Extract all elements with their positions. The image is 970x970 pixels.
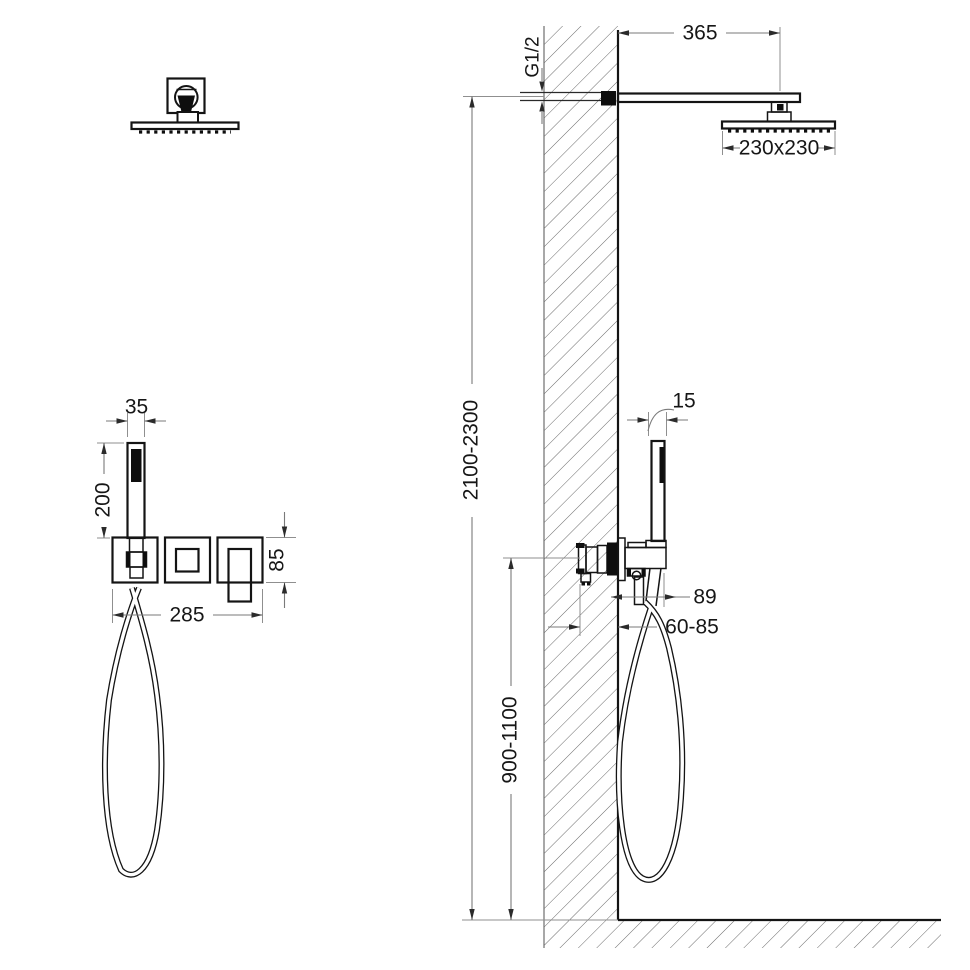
holder-body-side — [625, 548, 666, 569]
dim-label-mixer-height: 900-1100 — [499, 696, 522, 783]
arrow-left — [618, 624, 629, 629]
technical-drawing-page: 365 G1/2 230x230 — [0, 0, 970, 970]
dim-label-inlet-thread: G1/2 — [523, 36, 544, 77]
dim-hand-shower-width: 35 — [106, 396, 166, 438]
hand-shower-face-side — [660, 447, 664, 483]
shower-head-plate — [132, 123, 239, 130]
overhead-shower-front-view — [132, 79, 239, 133]
hand-shower-hose — [105, 588, 162, 875]
dim-label-hand-shower-width: 35 — [125, 396, 148, 419]
hose-coupling — [130, 567, 143, 578]
arrow-right — [769, 30, 780, 36]
dim-inlet-thread: G1/2 — [523, 36, 545, 124]
head-connector — [178, 112, 199, 123]
dim-overhead-height: 2100-2300 — [460, 97, 545, 921]
arrow-right — [638, 417, 649, 423]
arrow-down — [101, 527, 106, 538]
ball-joint-nut — [178, 96, 196, 113]
wand-lower-body — [130, 538, 144, 552]
arrow-left — [618, 30, 629, 36]
dim-arm-length: 365 — [618, 22, 780, 92]
hose-drop-left — [646, 568, 650, 601]
arrow-right — [665, 594, 676, 599]
trim-plate-diverter — [165, 538, 210, 583]
mixer-lever-side — [635, 577, 644, 605]
trim-plate-holder — [113, 538, 158, 583]
diverter-knob — [176, 549, 199, 572]
dim-label-hand-shower-depth: 15 — [672, 390, 695, 413]
dim-label-holder-projection: 89 — [693, 586, 716, 609]
arm-ball-joint-core — [777, 104, 784, 111]
arrow-left — [723, 145, 734, 151]
dim-label-hand-shower-length: 200 — [92, 482, 115, 517]
shower-installation-drawing: 365 G1/2 230x230 — [0, 0, 970, 970]
dim-hand-shower-depth: 15 — [627, 390, 696, 437]
arrow-left — [145, 418, 156, 424]
mixer-lever — [229, 549, 252, 602]
wall-section — [544, 26, 941, 948]
trim-plate-mixer — [218, 538, 263, 583]
hose-drop-right — [656, 568, 661, 606]
dim-hand-shower-length: 200 — [92, 443, 125, 538]
hand-shower-face — [131, 449, 142, 482]
dim-label-trim-width: 285 — [169, 604, 204, 627]
dim-label-embed-depth: 60-85 — [665, 616, 719, 639]
arrow-up — [101, 443, 106, 454]
dim-label-overhead-height: 2100-2300 — [460, 400, 483, 500]
valve-wall-block — [607, 543, 618, 576]
arrow-up — [469, 97, 474, 108]
arrow-down — [508, 909, 513, 920]
arrow-up — [282, 583, 287, 594]
arrow-left — [667, 417, 678, 423]
dim-trim-plate-height: 85 — [266, 512, 297, 608]
arrow-right — [252, 612, 263, 618]
dim-label-head-size: 230x230 — [739, 137, 820, 160]
arrow-right — [117, 418, 128, 424]
dim-head-size: 230x230 — [723, 131, 836, 160]
arrow-right — [824, 145, 835, 151]
hand-shower-hose-side — [619, 602, 682, 880]
dim-label-arm-length: 365 — [682, 22, 717, 45]
arrow-up — [508, 558, 513, 569]
hand-shower-hose-inner — [105, 588, 162, 875]
mixer-front-view — [105, 443, 263, 875]
dim-holder-projection: 89 — [611, 573, 717, 609]
arrow-down — [469, 909, 474, 920]
arrow-down — [282, 527, 287, 538]
shower-arm — [618, 94, 800, 103]
shower-head-side — [722, 122, 835, 129]
arrow-left — [113, 612, 124, 618]
dim-label-trim-plate-height: 85 — [266, 548, 289, 571]
wall-hatch — [544, 26, 941, 948]
wall-union-fitting — [601, 91, 616, 106]
